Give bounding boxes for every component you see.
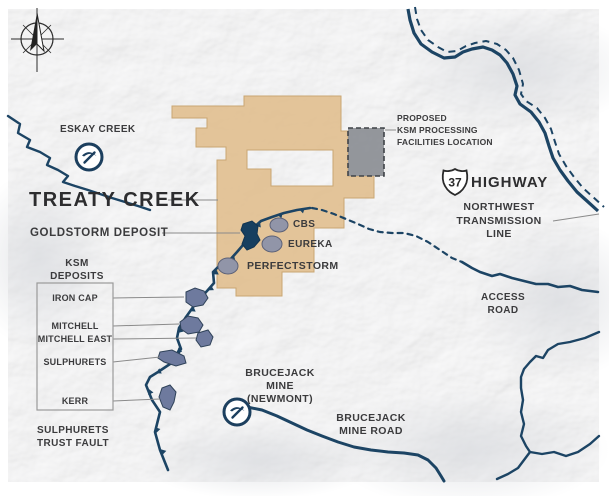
treaty-creek-label: TREATY CREEK xyxy=(29,188,201,213)
goldstorm-deposit-label: GOLDSTORM DEPOSIT xyxy=(30,226,168,240)
cbs-label: CBS xyxy=(293,219,315,232)
ksm-item-mitchell: MITCHELL xyxy=(37,321,113,332)
pickaxe-icon xyxy=(76,144,102,170)
facility-label: PROPOSED KSM PROCESSING FACILITIES LOCAT… xyxy=(397,112,493,148)
perfectstorm-label: PERFECTSTORM xyxy=(247,260,339,273)
access-road-label: ACCESS ROAD xyxy=(473,292,533,317)
highway-number: 37 xyxy=(448,176,462,190)
brucejack-mine-label: BRUCEJACK MINE (NEWMONT) xyxy=(230,367,330,406)
sulphurets-fault-label: SULPHURETS TRUST FAULT xyxy=(37,425,109,450)
brucejack-road-label: BRUCEJACK MINE ROAD xyxy=(331,412,411,438)
eskay-creek-label: ESKAY CREEK xyxy=(60,124,136,137)
mining-map: 37 ESKAY CREEK TREATY CREEK GOLDSTORM DE… xyxy=(0,0,609,496)
eureka-label: EUREKA xyxy=(288,239,333,252)
ksm-item-kerr: KERR xyxy=(37,396,113,407)
ksm-item-sulphurets: SULPHURETS xyxy=(37,357,113,368)
ksm-deposits-title: KSM DEPOSITS xyxy=(42,258,112,283)
ksm-item-iron-cap: IRON CAP xyxy=(37,293,113,304)
transmission-line-label: NORTHWEST TRANSMISSION LINE xyxy=(451,201,547,242)
eureka-deposit-shape xyxy=(262,236,282,252)
highway-label: HIGHWAY xyxy=(471,174,548,193)
proposed-facility-area xyxy=(348,128,384,176)
perfectstorm-deposit-shape xyxy=(218,258,238,274)
ksm-item-mitchell-east: MITCHELL EAST xyxy=(37,334,113,345)
cbs-deposit-shape xyxy=(270,218,288,232)
